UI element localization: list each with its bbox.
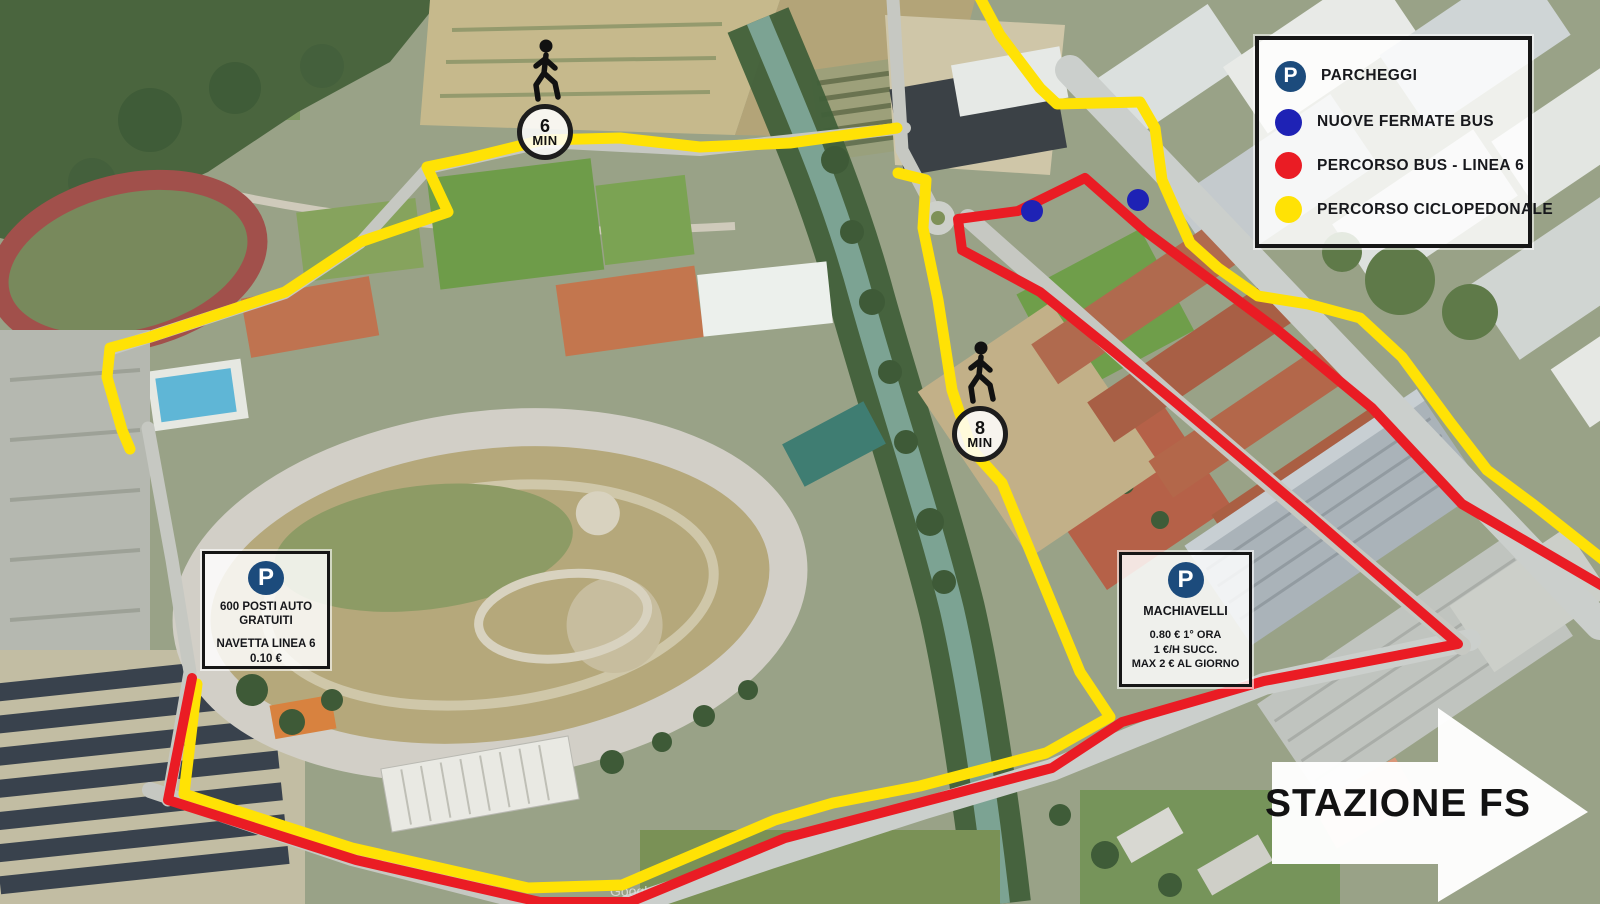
- legend-item-percorso-bus: PERCORSO BUS - LINEA 6: [1275, 152, 1522, 179]
- walk-marker-8min: 8 MIN: [945, 340, 1015, 462]
- bus-stop-dot-2: [1127, 189, 1149, 211]
- parking-mac-rate1: 0.80 € 1° ORA: [1150, 628, 1222, 642]
- legend-item-parcheggi: P PARCHEGGI: [1275, 61, 1522, 92]
- map-infographic: Google STAZIONE FS P PARCHEGGI NUOVE FER…: [0, 0, 1600, 904]
- legend-label: PERCORSO CICLOPEDONALE: [1317, 201, 1553, 219]
- pedestrian-icon: [522, 38, 568, 104]
- bus-route-dot-icon: [1275, 152, 1302, 179]
- parking-icon: P: [1275, 61, 1306, 92]
- station-arrow-label: STAZIONE FS: [1265, 782, 1531, 825]
- legend-label: PARCHEGGI: [1321, 67, 1417, 85]
- legend-item-fermate-bus: NUOVE FERMATE BUS: [1275, 109, 1522, 136]
- parking-icon: P: [1168, 562, 1204, 598]
- walk-minutes: 8: [975, 420, 985, 436]
- bus-stop-dot-1: [1021, 200, 1043, 222]
- parking-free-line4: 0.10 €: [250, 652, 282, 666]
- parking-mac-rate3: MAX 2 € AL GIORNO: [1132, 657, 1240, 671]
- parking-mac-name: MACHIAVELLI: [1143, 603, 1228, 619]
- parking-box-machiavelli: P MACHIAVELLI 0.80 € 1° ORA 1 €/H SUCC. …: [1119, 552, 1252, 687]
- parking-mac-rate2: 1 €/H SUCC.: [1154, 643, 1218, 657]
- parking-icon: P: [248, 561, 284, 595]
- legend: P PARCHEGGI NUOVE FERMATE BUS PERCORSO B…: [1255, 36, 1532, 248]
- cycle-route-dot-icon: [1275, 196, 1302, 223]
- walk-time-badge: 6 MIN: [517, 104, 573, 160]
- walk-marker-6min: 6 MIN: [510, 38, 580, 160]
- parking-free-line1: 600 POSTI AUTO: [220, 600, 312, 614]
- walk-unit: MIN: [532, 134, 557, 147]
- walk-unit: MIN: [967, 436, 992, 449]
- parking-box-free: P 600 POSTI AUTO GRATUITI NAVETTA LINEA …: [202, 551, 330, 669]
- legend-item-ciclopedonale: PERCORSO CICLOPEDONALE: [1275, 196, 1522, 223]
- pedestrian-icon: [957, 340, 1003, 406]
- legend-label: PERCORSO BUS - LINEA 6: [1317, 157, 1524, 175]
- walk-time-badge: 8 MIN: [952, 406, 1008, 462]
- bus-stop-dot-icon: [1275, 109, 1302, 136]
- legend-label: NUOVE FERMATE BUS: [1317, 113, 1494, 131]
- walk-minutes: 6: [540, 118, 550, 134]
- parking-free-line3: NAVETTA LINEA 6: [216, 637, 315, 651]
- parking-free-line2: GRATUITI: [239, 614, 292, 628]
